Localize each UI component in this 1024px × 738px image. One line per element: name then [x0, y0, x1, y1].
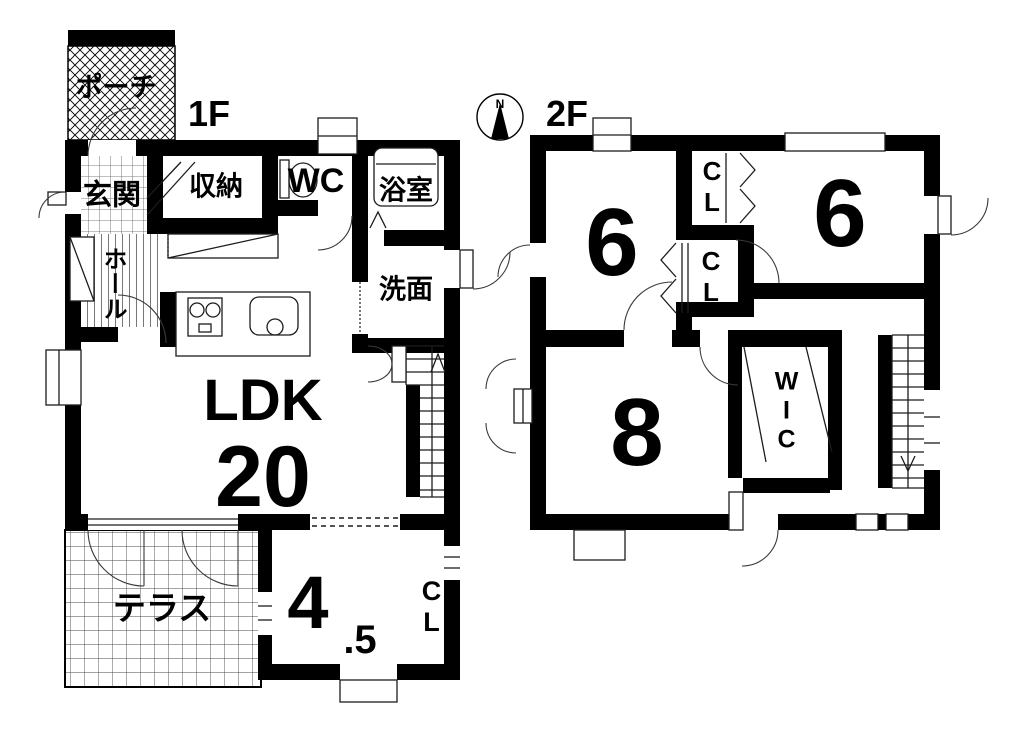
floor2-stairs	[892, 335, 924, 488]
bathroom-label: 浴室	[379, 178, 433, 205]
bedroom-left-size-label: 6	[585, 195, 638, 291]
closet-1f-label: CL	[418, 576, 445, 638]
porch-label: ポーチ	[76, 75, 157, 102]
washroom-label: 洗面	[379, 277, 433, 304]
floor1-title: 1F	[188, 96, 230, 132]
floorplan-drawing	[0, 0, 1024, 738]
tatami-room-size-fraction: .5	[343, 620, 376, 660]
wc-label: WC	[288, 164, 345, 198]
bedroom-right-size-label: 6	[813, 166, 866, 262]
bedroom-large-size-label: 8	[610, 385, 663, 481]
tatami-room-size-label: 4	[287, 566, 328, 640]
ldk-label: LDK	[203, 372, 322, 430]
floor2-title: 2F	[546, 96, 588, 132]
compass-north-label: N	[496, 98, 505, 110]
wic-label: WIC	[774, 368, 799, 455]
ldk-size-label: 20	[215, 434, 311, 520]
floor-plan-page: ポーチ 1F 玄関 収納 WC 浴室 洗面 ホール LDK 20 テラス 4 .…	[0, 0, 1024, 738]
terrace-label: テラス	[113, 592, 211, 625]
storage-label: 収納	[189, 174, 243, 201]
closet-2f-top-label: CL	[699, 156, 725, 218]
hall-label: ホール	[100, 247, 124, 322]
closet-2f-bottom-label: CL	[698, 246, 724, 308]
genkan-label: 玄関	[83, 182, 141, 211]
